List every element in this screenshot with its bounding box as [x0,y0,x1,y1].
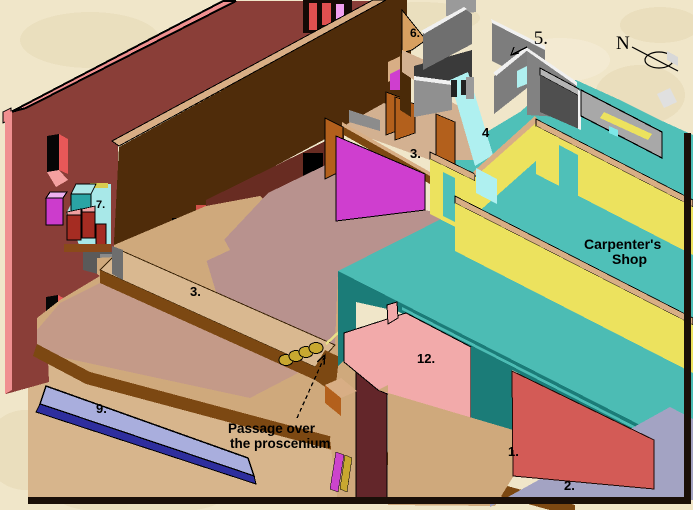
svg-text:6.: 6. [410,26,420,40]
svg-text:3.: 3. [410,146,421,161]
svg-text:2.: 2. [564,478,575,493]
svg-text:7.: 7. [96,199,105,211]
svg-text:N: N [616,33,630,54]
svg-text:5.: 5. [534,28,548,49]
svg-text:12.: 12. [417,351,435,366]
svg-text:Shop: Shop [612,251,647,267]
svg-text:1.: 1. [508,444,519,459]
svg-text:4: 4 [482,125,490,140]
svg-text:3.: 3. [190,284,201,299]
svg-text:9.: 9. [96,401,107,416]
svg-text:Carpenter's: Carpenter's [584,236,661,252]
svg-text:Passage over: Passage over [228,421,316,436]
svg-text:the proscenium: the proscenium [230,436,331,451]
